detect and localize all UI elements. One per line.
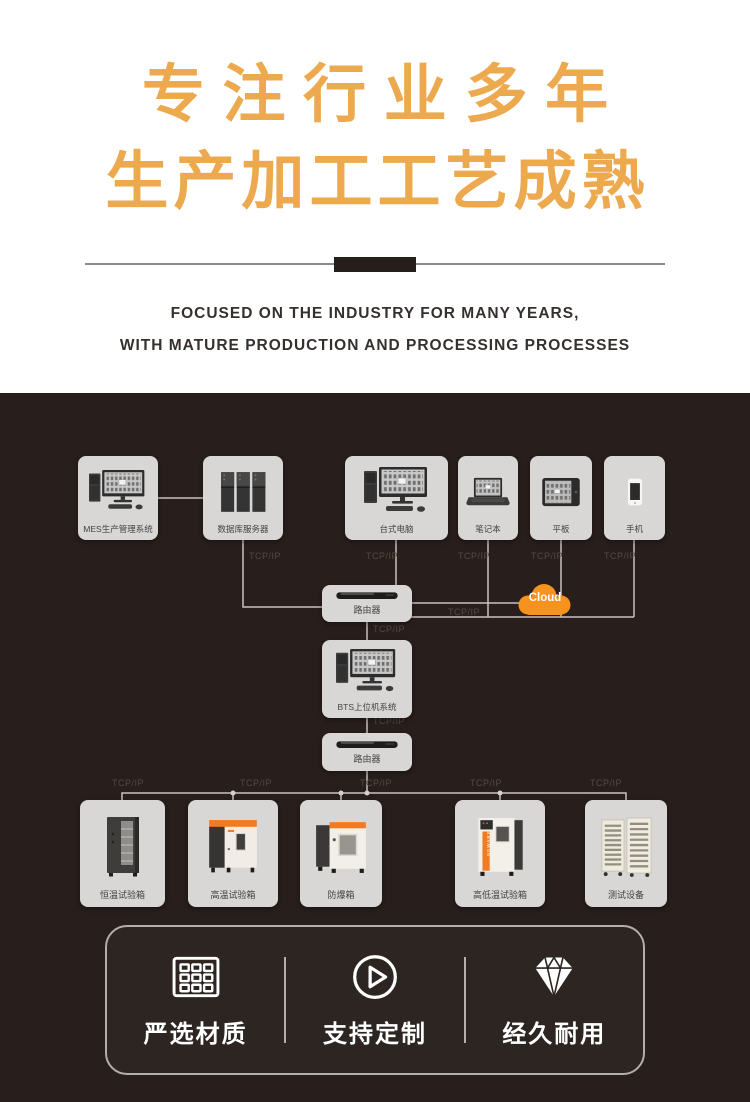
high-temp-chamber-icon	[188, 800, 278, 887]
explosion-proof-box-icon	[300, 800, 382, 887]
hero-title-line2: 生产加工工艺成熟	[0, 151, 750, 214]
hero-section: 专注行业多年 生产加工工艺成熟 FOCUSED ON THE INDUSTRY …	[0, 0, 750, 393]
node-test-equipment: 测试设备	[585, 800, 667, 907]
node-database-server: 数据库服务器	[203, 456, 283, 540]
divider-line-left	[85, 263, 334, 265]
node-desktop-pc: 台式电脑	[345, 456, 448, 540]
test-rack-icon	[585, 800, 667, 887]
desktop-computer-icon	[78, 456, 158, 521]
tcp-ip-label: TCP/IP	[531, 551, 563, 561]
node-laptop: 笔记本	[458, 456, 518, 540]
node-label: 防爆箱	[327, 887, 354, 900]
hero-subtitle-line1: FOCUSED ON THE INDUSTRY FOR MANY YEARS,	[171, 305, 580, 322]
node-label: 手机	[626, 521, 643, 534]
feature-label: 支持定制	[323, 1014, 427, 1049]
hero-divider	[85, 256, 665, 272]
node-label: 路由器	[353, 602, 380, 615]
hero-subtitle: FOCUSED ON THE INDUSTRY FOR MANY YEARS, …	[0, 298, 750, 362]
node-constant-temp-chamber: 恒温试验箱	[80, 800, 165, 907]
laptop-icon	[458, 456, 518, 521]
node-label: 平板	[552, 521, 569, 534]
node-label: 笔记本	[475, 521, 501, 534]
tcp-ip-label: TCP/IP	[240, 778, 272, 788]
play-icon	[348, 951, 402, 1003]
node-tablet: 平板	[530, 456, 592, 540]
desktop-computer-icon	[345, 456, 448, 521]
tcp-ip-label: TCP/IP	[470, 778, 502, 788]
tcp-ip-label: TCP/IP	[249, 551, 281, 561]
node-smartphone: 手机	[604, 456, 665, 540]
node-label: 台式电脑	[379, 521, 413, 534]
hero-title-line1: 专注行业多年	[0, 0, 750, 127]
tcp-ip-label: TCP/IP	[366, 551, 398, 561]
high-low-temp-chamber-icon	[455, 800, 545, 887]
diamond-icon	[527, 951, 581, 1003]
feature-durability: 经久耐用	[466, 951, 643, 1049]
feature-label: 经久耐用	[502, 1014, 606, 1049]
chamber-brand-text: NEWARE	[486, 822, 494, 864]
network-diagram-section: TCP/IP TCP/IP TCP/IP TCP/IP TCP/IP TCP/I…	[0, 393, 750, 1102]
node-mes-system: MES生产管理系统	[78, 456, 158, 540]
constant-temp-chamber-icon	[80, 800, 165, 887]
node-label: 恒温试验箱	[100, 887, 145, 900]
feature-materials: 严选材质	[107, 951, 284, 1049]
tcp-ip-label: TCP/IP	[448, 607, 480, 617]
smartphone-icon	[604, 456, 665, 521]
divider-center-bar	[334, 257, 416, 272]
node-router-2: 路由器	[322, 733, 412, 771]
node-label: 高低温试验箱	[473, 887, 527, 900]
router-icon	[322, 730, 412, 751]
tcp-ip-label: TCP/IP	[590, 778, 622, 788]
node-router-1: 路由器	[322, 585, 412, 622]
tcp-ip-label: TCP/IP	[373, 624, 405, 634]
tcp-ip-label: TCP/IP	[360, 778, 392, 788]
feature-card: 严选材质 支持定制 经久耐用	[105, 925, 645, 1075]
node-high-temp-chamber: 高温试验箱	[188, 800, 278, 907]
node-explosion-proof-box: 防爆箱	[300, 800, 382, 907]
cloud-label: Cloud	[514, 592, 576, 604]
node-bts-host-system: BTS上位机系统	[322, 640, 412, 718]
node-label: 测试设备	[608, 887, 644, 900]
node-label: 数据库服务器	[217, 521, 268, 534]
feature-label: 严选材质	[144, 1014, 248, 1049]
node-label: MES生产管理系统	[83, 521, 152, 534]
tcp-ip-label: TCP/IP	[458, 551, 490, 561]
node-high-low-temp-chamber: NEWARE 高低温试验箱	[455, 800, 545, 907]
cloud-node: Cloud	[514, 583, 576, 617]
tablet-icon	[530, 456, 592, 521]
desktop-computer-icon	[322, 640, 412, 699]
node-label: 路由器	[353, 751, 380, 764]
router-icon	[322, 581, 412, 602]
server-rack-icon	[203, 456, 283, 521]
page: 专注行业多年 生产加工工艺成熟 FOCUSED ON THE INDUSTRY …	[0, 0, 750, 1102]
grid-icon	[168, 951, 224, 1003]
tcp-ip-label: TCP/IP	[604, 551, 636, 561]
tcp-ip-label: TCP/IP	[112, 778, 144, 788]
node-label: 高温试验箱	[210, 887, 255, 900]
divider-line-right	[416, 263, 665, 265]
node-label: BTS上位机系统	[337, 699, 396, 712]
hero-subtitle-line2: WITH MATURE PRODUCTION AND PROCESSING PR…	[120, 337, 630, 354]
feature-customization: 支持定制	[286, 951, 463, 1049]
